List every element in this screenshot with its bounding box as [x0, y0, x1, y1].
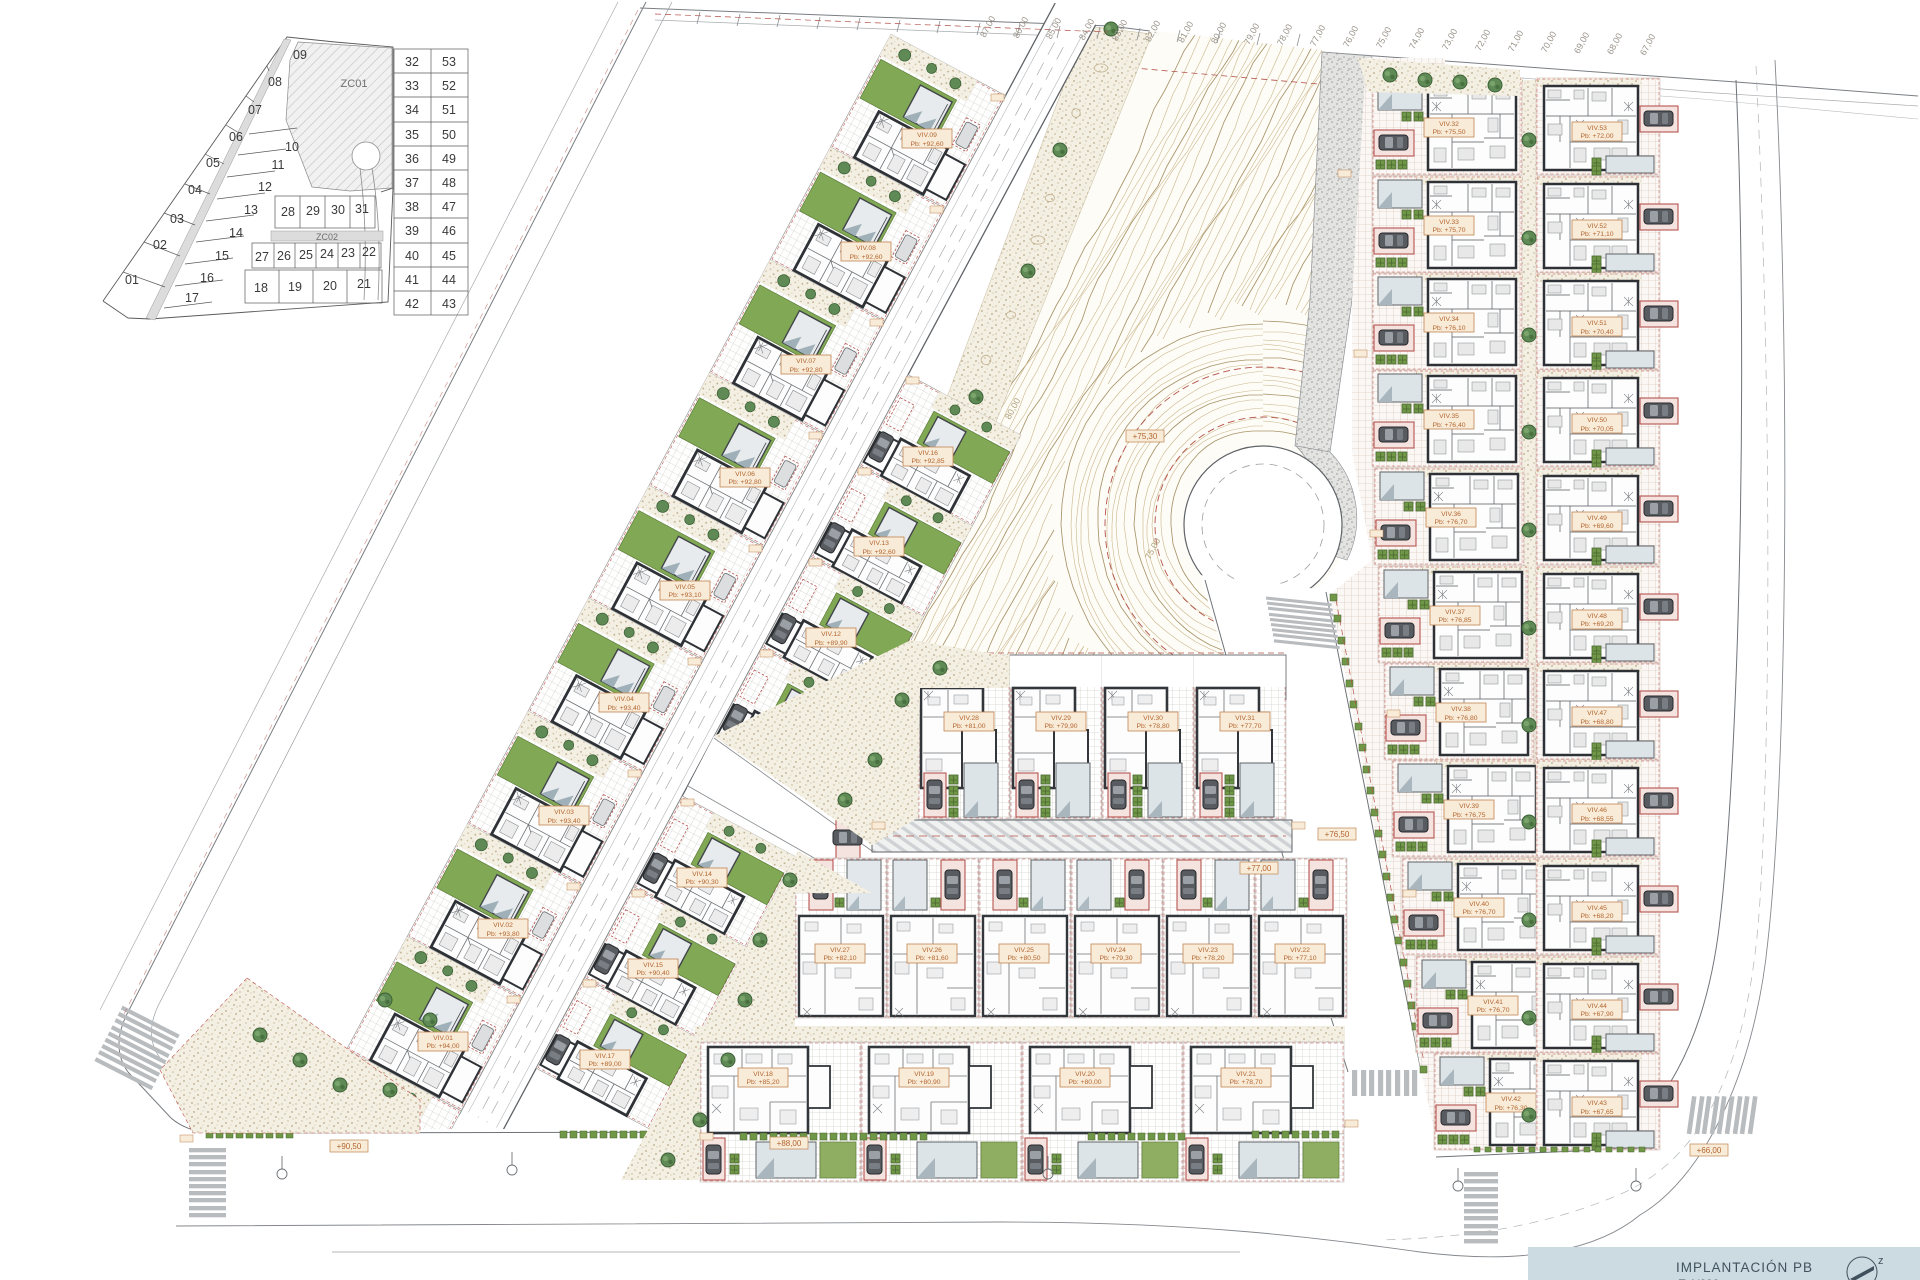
- svg-text:08: 08: [268, 75, 282, 89]
- svg-text:Pb: +70,40: Pb: +70,40: [1580, 329, 1613, 336]
- svg-text:52: 52: [442, 79, 456, 93]
- svg-text:Pb: +80,50: Pb: +80,50: [1007, 955, 1040, 962]
- svg-text:09: 09: [293, 48, 307, 62]
- svg-text:11: 11: [272, 158, 285, 172]
- svg-text:43: 43: [442, 297, 456, 311]
- svg-text:Pb: +68,80: Pb: +68,80: [1580, 719, 1613, 726]
- svg-text:27: 27: [255, 250, 269, 264]
- svg-text:Pb: +75,70: Pb: +75,70: [1432, 227, 1465, 234]
- svg-text:49: 49: [442, 152, 456, 166]
- svg-text:12: 12: [258, 180, 272, 194]
- svg-text:Pb: +76,75: Pb: +76,75: [1452, 812, 1485, 819]
- svg-text:VIV.38: VIV.38: [1451, 706, 1471, 713]
- svg-text:Pb: +89,90: Pb: +89,90: [814, 640, 847, 647]
- svg-text:VIV.37: VIV.37: [1445, 609, 1465, 616]
- svg-text:Pb: +80,90: Pb: +80,90: [907, 1079, 940, 1086]
- svg-text:VIV.27: VIV.27: [830, 947, 850, 954]
- svg-text:IMPLANTACIÓN PB: IMPLANTACIÓN PB: [1676, 1260, 1813, 1275]
- svg-text:VIV.03: VIV.03: [554, 809, 574, 816]
- svg-text:Pb: +94,00: Pb: +94,00: [426, 1043, 459, 1050]
- svg-text:Pb: +90,30: Pb: +90,30: [685, 879, 718, 886]
- svg-text:Pb: +93,80: Pb: +93,80: [486, 931, 519, 938]
- svg-text:02: 02: [153, 238, 167, 252]
- svg-text:VIV.14: VIV.14: [692, 871, 712, 878]
- svg-text:VIV.31: VIV.31: [1235, 715, 1255, 722]
- svg-text:Pb: +81,00: Pb: +81,00: [952, 723, 985, 730]
- svg-text:23: 23: [341, 246, 355, 260]
- svg-text:35: 35: [405, 128, 419, 142]
- svg-text:Pb: +93,40: Pb: +93,40: [547, 818, 580, 825]
- svg-text:34: 34: [405, 103, 419, 117]
- svg-text:Pb: +76,85: Pb: +76,85: [1438, 617, 1471, 624]
- svg-text:VIV.52: VIV.52: [1587, 223, 1607, 230]
- svg-text:19: 19: [288, 280, 302, 294]
- svg-text:33: 33: [405, 79, 419, 93]
- svg-text:29: 29: [306, 204, 320, 218]
- svg-text:+66,00: +66,00: [1697, 1146, 1722, 1155]
- svg-text:Pb: +93,10: Pb: +93,10: [668, 592, 701, 599]
- svg-text:21: 21: [357, 277, 371, 291]
- svg-text:10: 10: [285, 140, 299, 154]
- svg-text:Pb: +75,50: Pb: +75,50: [1432, 129, 1465, 136]
- svg-text:Pb: +93,40: Pb: +93,40: [607, 705, 640, 712]
- svg-text:VIV.19: VIV.19: [914, 1071, 934, 1078]
- svg-text:VIV.15: VIV.15: [643, 962, 663, 969]
- svg-text:Pb: +92,80: Pb: +92,80: [789, 367, 822, 374]
- svg-text:44: 44: [442, 273, 456, 287]
- svg-text:VIV.20: VIV.20: [1075, 1071, 1095, 1078]
- svg-text:Pb: +76,80: Pb: +76,80: [1444, 715, 1477, 722]
- svg-text:Pb: +92,60: Pb: +92,60: [862, 549, 895, 556]
- svg-text:VIV.16: VIV.16: [918, 450, 938, 457]
- svg-text:z: z: [1878, 1255, 1884, 1267]
- svg-text:Pb: +92,60: Pb: +92,60: [849, 254, 882, 261]
- svg-text:VIV.29: VIV.29: [1051, 715, 1071, 722]
- svg-text:VIV.02: VIV.02: [493, 922, 513, 929]
- svg-text:VIV.47: VIV.47: [1587, 710, 1607, 717]
- svg-text:VIV.04: VIV.04: [614, 696, 634, 703]
- svg-text:31: 31: [355, 202, 369, 216]
- svg-text:VIV.35: VIV.35: [1439, 413, 1459, 420]
- svg-text:51: 51: [442, 103, 456, 117]
- svg-text:Pb: +67,90: Pb: +67,90: [1580, 1011, 1613, 1018]
- svg-text:07: 07: [248, 103, 262, 117]
- svg-text:VIV.21: VIV.21: [1236, 1071, 1256, 1078]
- svg-text:+90,50: +90,50: [337, 1142, 362, 1151]
- svg-text:+75,30: +75,30: [1133, 432, 1158, 441]
- svg-text:53: 53: [442, 55, 456, 69]
- svg-text:Pb: +76,70: Pb: +76,70: [1434, 519, 1467, 526]
- svg-text:VIV.40: VIV.40: [1469, 901, 1489, 908]
- svg-text:46: 46: [442, 224, 456, 238]
- svg-text:Pb: +78,80: Pb: +78,80: [1136, 723, 1169, 730]
- svg-text:VIV.06: VIV.06: [735, 471, 755, 478]
- svg-text:Pb: +78,70: Pb: +78,70: [1229, 1079, 1262, 1086]
- svg-text:Pb: +68,20: Pb: +68,20: [1580, 913, 1613, 920]
- svg-text:42: 42: [405, 297, 419, 311]
- svg-text:VIV.32: VIV.32: [1439, 121, 1459, 128]
- svg-text:39: 39: [405, 224, 419, 238]
- svg-text:VIV.23: VIV.23: [1198, 947, 1218, 954]
- svg-text:Pb: +69,20: Pb: +69,20: [1580, 621, 1613, 628]
- svg-text:28: 28: [281, 205, 295, 219]
- svg-text:40: 40: [405, 249, 419, 263]
- svg-text:VIV.05: VIV.05: [675, 584, 695, 591]
- svg-text:+76,50: +76,50: [1325, 830, 1350, 839]
- svg-text:Pb: +92,60: Pb: +92,60: [910, 141, 943, 148]
- svg-text:ZC02: ZC02: [316, 232, 338, 242]
- svg-text:17: 17: [185, 291, 199, 305]
- svg-text:Pb: +79,90: Pb: +79,90: [1044, 723, 1077, 730]
- svg-text:Pb: +76,70: Pb: +76,70: [1476, 1007, 1509, 1014]
- svg-text:VIV.13: VIV.13: [869, 540, 889, 547]
- svg-text:Pb: +67,65: Pb: +67,65: [1580, 1109, 1613, 1116]
- svg-text:15: 15: [215, 249, 229, 263]
- svg-text:VIV.42: VIV.42: [1501, 1096, 1521, 1103]
- svg-text:13: 13: [244, 203, 258, 217]
- svg-text:Pb: +72,00: Pb: +72,00: [1580, 133, 1613, 140]
- svg-text:22: 22: [362, 245, 376, 259]
- svg-text:25: 25: [299, 248, 313, 262]
- svg-text:32: 32: [405, 55, 419, 69]
- svg-text:Pb: +81,60: Pb: +81,60: [915, 955, 948, 962]
- svg-text:30: 30: [331, 203, 345, 217]
- svg-text:VIV.24: VIV.24: [1106, 947, 1126, 954]
- svg-text:18: 18: [254, 281, 268, 295]
- svg-text:VIV.33: VIV.33: [1439, 219, 1459, 226]
- svg-text:VIV.36: VIV.36: [1441, 511, 1461, 518]
- svg-text:VIV.45: VIV.45: [1587, 905, 1607, 912]
- svg-text:VIV.17: VIV.17: [595, 1053, 615, 1060]
- svg-text:Pb: +82,10: Pb: +82,10: [823, 955, 856, 962]
- svg-text:VIV.44: VIV.44: [1587, 1003, 1607, 1010]
- svg-text:26: 26: [277, 249, 291, 263]
- svg-text:38: 38: [405, 200, 419, 214]
- svg-text:37: 37: [405, 176, 419, 190]
- svg-text:Pb: +85,20: Pb: +85,20: [746, 1079, 779, 1086]
- svg-text:24: 24: [320, 247, 334, 261]
- svg-text:Pb: +71,10: Pb: +71,10: [1580, 231, 1613, 238]
- svg-text:VIV.08: VIV.08: [856, 245, 876, 252]
- svg-text:VIV.51: VIV.51: [1587, 320, 1607, 327]
- svg-text:VIV.43: VIV.43: [1587, 1100, 1607, 1107]
- svg-text:VIV.39: VIV.39: [1459, 803, 1479, 810]
- svg-text:48: 48: [442, 176, 456, 190]
- svg-text:01: 01: [125, 273, 139, 287]
- svg-text:VIV.48: VIV.48: [1587, 613, 1607, 620]
- svg-text:Pb: +70,05: Pb: +70,05: [1580, 426, 1613, 433]
- svg-text:16: 16: [200, 271, 214, 285]
- svg-text:VIV.07: VIV.07: [796, 358, 816, 365]
- svg-text:50: 50: [442, 128, 456, 142]
- svg-text:05: 05: [206, 156, 220, 170]
- svg-text:03: 03: [170, 212, 184, 226]
- svg-text:41: 41: [405, 273, 419, 287]
- svg-text:+77,00: +77,00: [1247, 864, 1272, 873]
- svg-text:VIV.49: VIV.49: [1587, 515, 1607, 522]
- svg-text:VIV.18: VIV.18: [753, 1071, 773, 1078]
- svg-text:VIV.22: VIV.22: [1290, 947, 1310, 954]
- svg-text:VIV.28: VIV.28: [959, 715, 979, 722]
- svg-text:Pb: +76,40: Pb: +76,40: [1432, 422, 1465, 429]
- svg-text:Pb: +79,30: Pb: +79,30: [1099, 955, 1132, 962]
- svg-text:ZC01: ZC01: [341, 78, 368, 90]
- svg-text:VIV.30: VIV.30: [1143, 715, 1163, 722]
- svg-text:Pb: +68,55: Pb: +68,55: [1580, 816, 1613, 823]
- svg-text:04: 04: [188, 183, 202, 197]
- svg-text:Pb: +90,40: Pb: +90,40: [636, 970, 669, 977]
- svg-text:36: 36: [405, 152, 419, 166]
- svg-text:VIV.53: VIV.53: [1587, 125, 1607, 132]
- svg-text:VIV.34: VIV.34: [1439, 316, 1459, 323]
- svg-text:14: 14: [229, 226, 243, 240]
- svg-text:VIV.46: VIV.46: [1587, 807, 1607, 814]
- svg-text:VIV.01: VIV.01: [433, 1035, 453, 1042]
- svg-text:Pb: +78,20: Pb: +78,20: [1191, 955, 1224, 962]
- svg-text:VIV.41: VIV.41: [1483, 999, 1503, 1006]
- svg-text:Pb: +80,00: Pb: +80,00: [1068, 1079, 1101, 1086]
- svg-text:06: 06: [229, 130, 243, 144]
- svg-text:Pb: +77,10: Pb: +77,10: [1283, 955, 1316, 962]
- svg-text:20: 20: [323, 279, 337, 293]
- svg-text:47: 47: [442, 200, 456, 214]
- svg-text:Pb: +76,10: Pb: +76,10: [1432, 325, 1465, 332]
- svg-text:Pb: +77,70: Pb: +77,70: [1228, 723, 1261, 730]
- svg-text:VIV.12: VIV.12: [821, 631, 841, 638]
- svg-text:45: 45: [442, 249, 456, 263]
- svg-text:VIV.26: VIV.26: [922, 947, 942, 954]
- svg-text:Pb: +92,85: Pb: +92,85: [911, 458, 944, 465]
- svg-text:VIV.50: VIV.50: [1587, 417, 1607, 424]
- svg-text:Pb: +92,80: Pb: +92,80: [728, 479, 761, 486]
- svg-text:Pb: +69,60: Pb: +69,60: [1580, 523, 1613, 530]
- svg-text:+88,00: +88,00: [777, 1139, 802, 1148]
- svg-text:Pb: +89,00: Pb: +89,00: [588, 1061, 621, 1068]
- svg-text:VIV.25: VIV.25: [1014, 947, 1034, 954]
- svg-text:VIV.09: VIV.09: [917, 132, 937, 139]
- svg-text:Pb: +76,70: Pb: +76,70: [1462, 909, 1495, 916]
